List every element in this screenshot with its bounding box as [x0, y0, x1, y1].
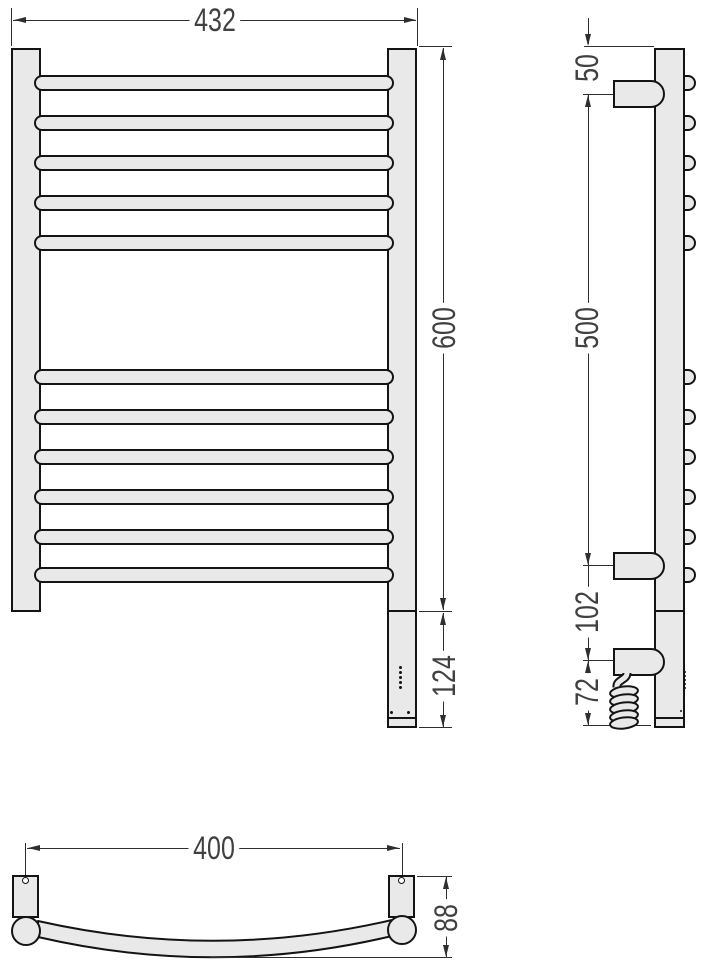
left-rail [11, 48, 41, 612]
arrowhead [585, 34, 591, 46]
towel-bar [34, 529, 394, 545]
dim-label-cable-length: 72 [569, 673, 605, 710]
towel-bar [34, 369, 394, 385]
side-end-cap [654, 717, 685, 728]
bar-end [683, 449, 696, 465]
heater-extension [387, 610, 417, 719]
extension-line [210, 957, 452, 958]
towel-bar [34, 235, 394, 251]
arrowhead [440, 715, 446, 727]
indicator-dot [399, 686, 402, 689]
indicator-dot [684, 679, 686, 681]
towel-bar [34, 75, 394, 91]
indicator-dot [684, 671, 686, 673]
extension-line [584, 46, 654, 47]
towel-bar [34, 449, 394, 465]
bar-end [683, 235, 696, 251]
mount-hole-left [22, 877, 29, 884]
indicator-dot [399, 671, 402, 674]
arrowhead [443, 877, 449, 889]
arrowhead [387, 845, 399, 851]
dim-label-depth: 88 [428, 899, 464, 936]
bar-end [683, 567, 696, 583]
bar-end [683, 155, 696, 171]
right-rail [387, 48, 417, 612]
arrowhead [585, 661, 591, 673]
extension-line [11, 8, 12, 46]
indicator-dot [399, 681, 402, 684]
dim-label-heater-offset: 102 [569, 586, 605, 637]
bar-end [683, 195, 696, 211]
bar-end [683, 489, 696, 505]
towel-bar [34, 155, 394, 171]
arrowhead [14, 17, 26, 23]
dim-label-bracket-top-offset: 50 [569, 49, 605, 86]
bar-end [683, 409, 696, 425]
rail-section-right [387, 915, 417, 945]
arrowhead [585, 713, 591, 725]
rail-section-left [11, 916, 41, 946]
extension-line [419, 611, 452, 612]
arrowhead [585, 553, 591, 565]
wall-bracket-bottom [613, 552, 665, 580]
wall-bracket-top [613, 80, 665, 108]
dim-label-heater-section: 124 [426, 650, 462, 701]
extension-line [417, 8, 418, 46]
curved-bar-top-view [0, 860, 460, 970]
dim-label-overall-width: 432 [189, 2, 240, 38]
arrowhead [404, 17, 416, 23]
indicator-dot [399, 666, 402, 669]
indicator-dot [684, 687, 686, 689]
bar-end [683, 115, 696, 131]
extension-line [25, 843, 26, 875]
arrowhead [440, 48, 446, 60]
dim-label-bracket-spacing: 500 [569, 302, 605, 353]
dim-label-rail-height: 600 [426, 302, 462, 353]
indicator-dot [684, 675, 686, 677]
towel-bar [34, 195, 394, 211]
power-cable-coil [602, 672, 652, 730]
towel-bar [34, 409, 394, 425]
technical-drawing: 432 600 124 [0, 0, 709, 970]
mount-hole-right [398, 877, 405, 884]
extension-line [402, 843, 403, 875]
extension-line [419, 46, 452, 47]
bar-end [683, 369, 696, 385]
towel-bar [34, 567, 394, 583]
arrowhead [443, 945, 449, 957]
indicator-dot [399, 676, 402, 679]
arrowhead [440, 598, 446, 610]
bar-end [683, 75, 696, 91]
arrowhead [585, 648, 591, 660]
indicator-dot [684, 683, 686, 685]
arrowhead [28, 845, 40, 851]
screw-dot [390, 711, 393, 714]
extension-line [419, 727, 452, 728]
arrowhead [585, 95, 591, 107]
bar-end [683, 529, 696, 545]
towel-bar [34, 115, 394, 131]
heater-end-cap [387, 717, 417, 728]
screw-dot [680, 710, 682, 712]
towel-bar [34, 489, 394, 505]
dim-label-mount-spacing: 400 [188, 830, 239, 866]
screw-dot [407, 711, 410, 714]
arrowhead [440, 613, 446, 625]
side-rail [654, 48, 685, 612]
